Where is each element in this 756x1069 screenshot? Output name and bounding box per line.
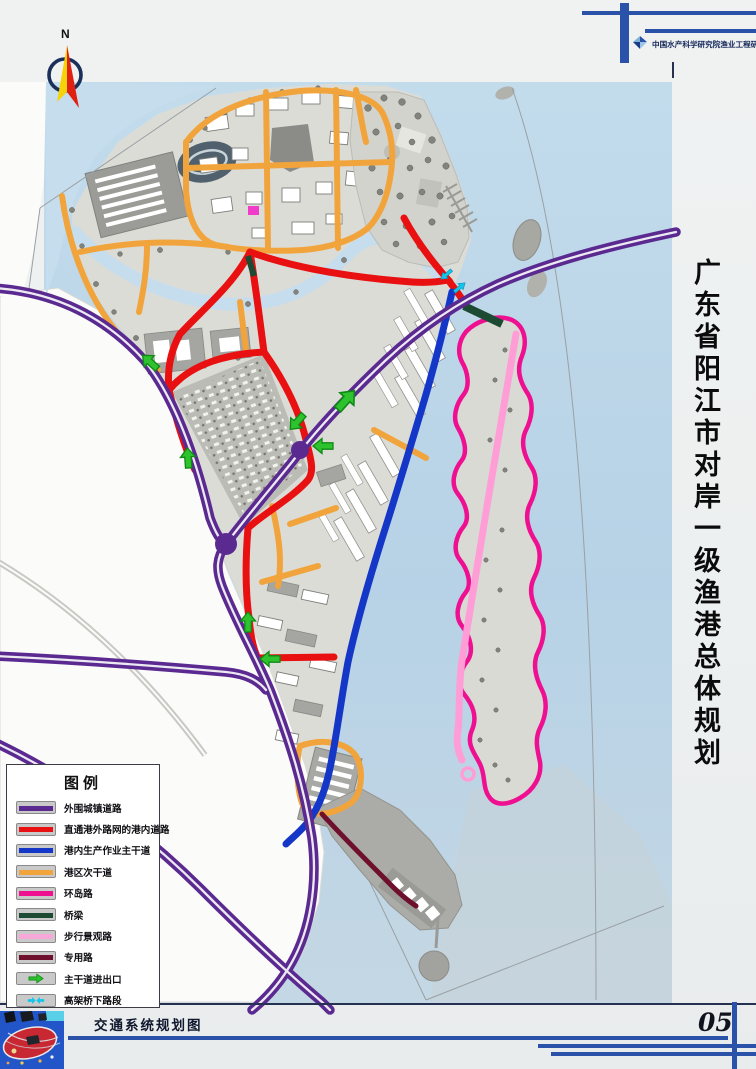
legend-swatch: [16, 801, 56, 814]
legend-swatch: [16, 972, 56, 985]
legend-swatch: [16, 994, 56, 1007]
legend-item: 外围城镇道路: [7, 797, 159, 818]
legend-item: 高架桥下路段: [7, 990, 159, 1011]
legend-item: 主干道进出口: [7, 968, 159, 989]
legend-label: 外围城镇道路: [64, 801, 122, 815]
thumbnail-map: [0, 1011, 64, 1069]
legend-label: 专用路: [64, 950, 93, 964]
legend-item: 步行景观路: [7, 925, 159, 946]
legend-item: 港内生产作业主干道: [7, 840, 159, 861]
legend-swatch: [16, 887, 56, 900]
legend-item: 直通港外路网的港内道路: [7, 818, 159, 839]
legend-swatch: [16, 930, 56, 943]
legend-item: 环岛路: [7, 883, 159, 904]
compass-needle-east: [67, 45, 79, 108]
compass-needle-west: [57, 45, 67, 102]
page-number: 05: [698, 1008, 733, 1037]
legend-item: 港区次干道: [7, 861, 159, 882]
legend-swatch: [16, 844, 56, 857]
footer-title: 交通系统规划图: [94, 1014, 203, 1034]
purple-roundabout: [291, 441, 309, 459]
roundabout-circle: [419, 951, 449, 981]
footer-line-3: [551, 1052, 756, 1056]
pink-plaza: [248, 206, 259, 215]
legend-title: 图例: [7, 772, 159, 793]
planning-map-page: 中国水产科学研究院渔业工程研究所 N 广东省阳江市对岸一级渔港总体规划 图例 外…: [0, 0, 756, 1069]
legend-label: 环岛路: [64, 886, 93, 900]
footer-line-2: [538, 1044, 756, 1048]
legend-swatch: [16, 823, 56, 836]
legend-box: 图例 外围城镇道路 直通港外路网的港内道路 港内生产作业主干道 港区次干道 环岛…: [6, 764, 160, 1008]
legend-label: 桥梁: [64, 908, 83, 922]
legend-label: 港区次干道: [64, 865, 112, 879]
legend-swatch: [16, 908, 56, 921]
legend-swatch: [16, 951, 56, 964]
legend-label: 直通港外路网的港内道路: [64, 822, 170, 836]
compass: N: [40, 22, 100, 117]
legend-label: 港内生产作业主干道: [64, 843, 150, 857]
legend-item: 专用路: [7, 947, 159, 968]
entrance-arrow-icon: [17, 973, 55, 984]
legend-item: 桥梁: [7, 904, 159, 925]
purple-junction: [215, 533, 237, 555]
compass-north-label: N: [61, 27, 70, 41]
legend-label: 步行景观路: [64, 929, 112, 943]
underpass-icon: [17, 995, 55, 1006]
footer-line-1: [68, 1036, 728, 1040]
legend-label: 主干道进出口: [64, 972, 122, 986]
legend-swatch: [16, 865, 56, 878]
legend-label: 高架桥下路段: [64, 993, 122, 1007]
